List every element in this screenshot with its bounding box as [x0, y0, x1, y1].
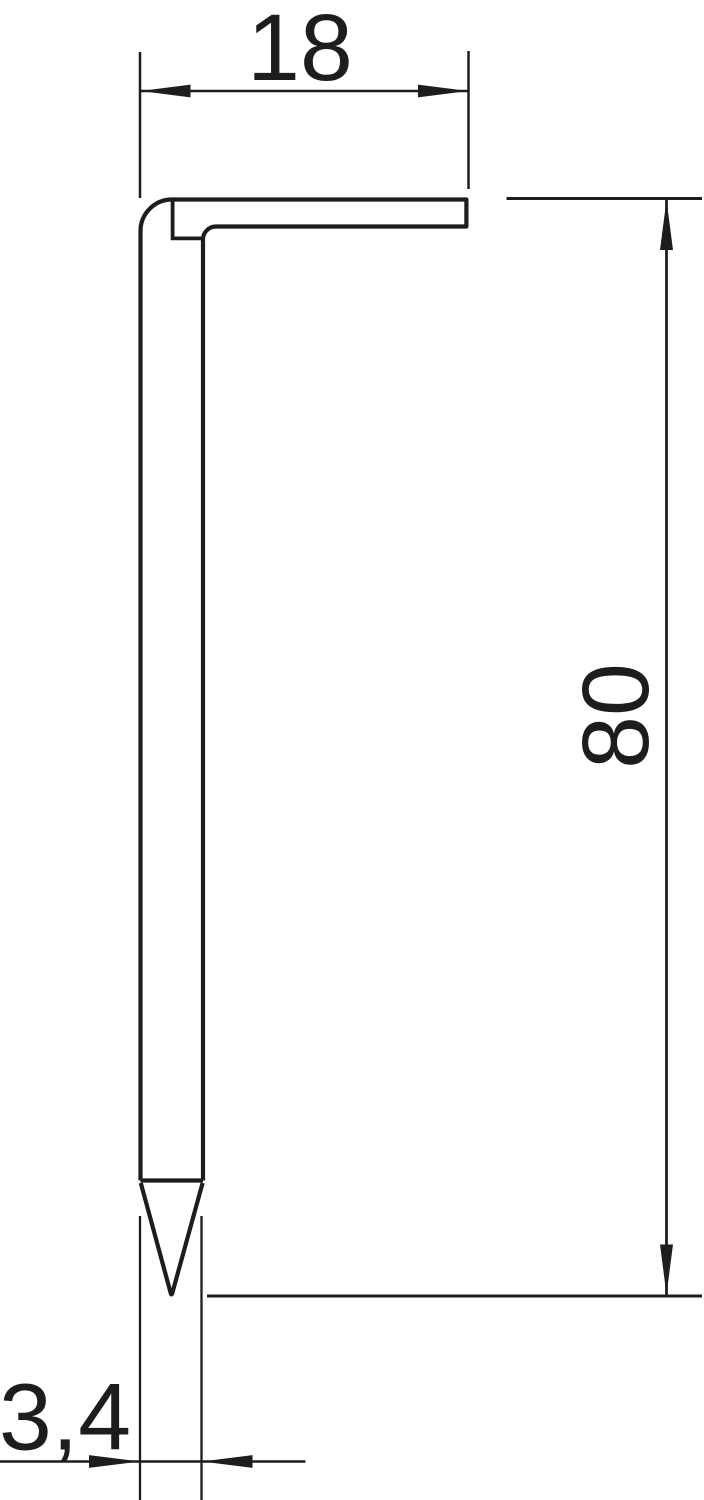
svg-text:80: 80 — [563, 663, 669, 769]
svg-text:3,4: 3,4 — [0, 1365, 131, 1471]
svg-text:18: 18 — [247, 0, 353, 101]
